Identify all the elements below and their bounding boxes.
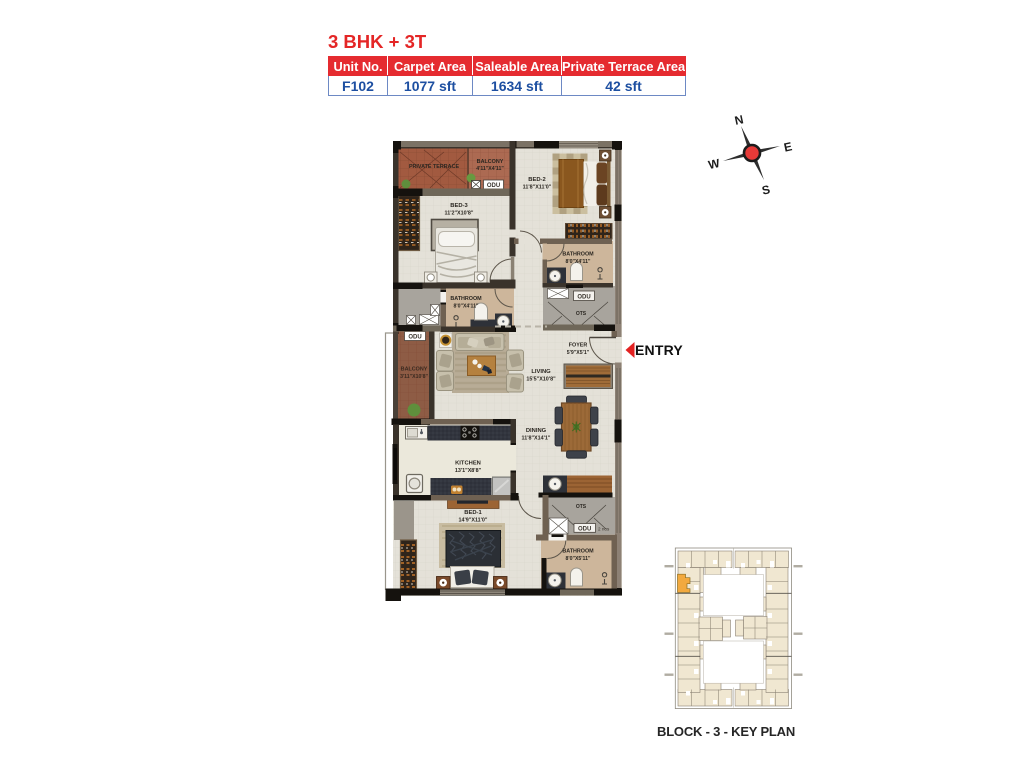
svg-text:13'1"X8'8": 13'1"X8'8" <box>455 468 482 474</box>
svg-text:OTS: OTS <box>576 311 587 317</box>
svg-text:BALCONY: BALCONY <box>477 159 504 165</box>
svg-text:ODU: ODU <box>408 335 421 341</box>
svg-text:W: W <box>707 156 722 172</box>
svg-text:S: S <box>761 182 772 197</box>
svg-text:DINING: DINING <box>526 428 547 434</box>
svg-text:PRIVATE TERRACE: PRIVATE TERRACE <box>409 164 460 170</box>
svg-text:BATHROOM: BATHROOM <box>562 252 594 258</box>
svg-text:5'9"X5'1": 5'9"X5'1" <box>567 350 590 356</box>
svg-text:N: N <box>733 112 744 127</box>
svg-text:BED-1: BED-1 <box>464 510 482 516</box>
svg-text:ODU: ODU <box>578 527 591 533</box>
svg-text:BED-2: BED-2 <box>528 177 545 183</box>
svg-text:OTS: OTS <box>576 504 587 510</box>
svg-text:4'11"X4'11": 4'11"X4'11" <box>476 166 504 172</box>
svg-text:BATHROOM: BATHROOM <box>562 549 594 555</box>
svg-text:ODU: ODU <box>487 183 500 189</box>
svg-text:E: E <box>783 139 794 154</box>
svg-text:BALCONY: BALCONY <box>401 367 428 373</box>
svg-text:3'11"X10'8": 3'11"X10'8" <box>400 374 428 380</box>
svg-text:11'8"X11'0": 11'8"X11'0" <box>523 185 552 191</box>
svg-text:FOYER: FOYER <box>569 343 588 349</box>
svg-text:2 nos: 2 nos <box>598 527 610 532</box>
svg-text:14'9"X11'0": 14'9"X11'0" <box>459 518 488 524</box>
svg-text:8'0"X5'11": 8'0"X5'11" <box>566 556 592 562</box>
svg-text:15'5"X10'8": 15'5"X10'8" <box>526 377 556 383</box>
svg-text:11'2"X10'8": 11'2"X10'8" <box>445 211 474 217</box>
svg-text:BED-3: BED-3 <box>450 203 468 209</box>
svg-text:BATHROOM: BATHROOM <box>450 296 482 302</box>
svg-text:8'0"X4'11": 8'0"X4'11" <box>566 259 592 265</box>
svg-text:11'8"X14'1": 11'8"X14'1" <box>522 436 551 442</box>
svg-text:8'0"X4'11": 8'0"X4'11" <box>454 304 480 310</box>
svg-text:LIVING: LIVING <box>531 369 551 375</box>
svg-text:ODU: ODU <box>577 295 590 301</box>
svg-text:KITCHEN: KITCHEN <box>455 461 481 467</box>
